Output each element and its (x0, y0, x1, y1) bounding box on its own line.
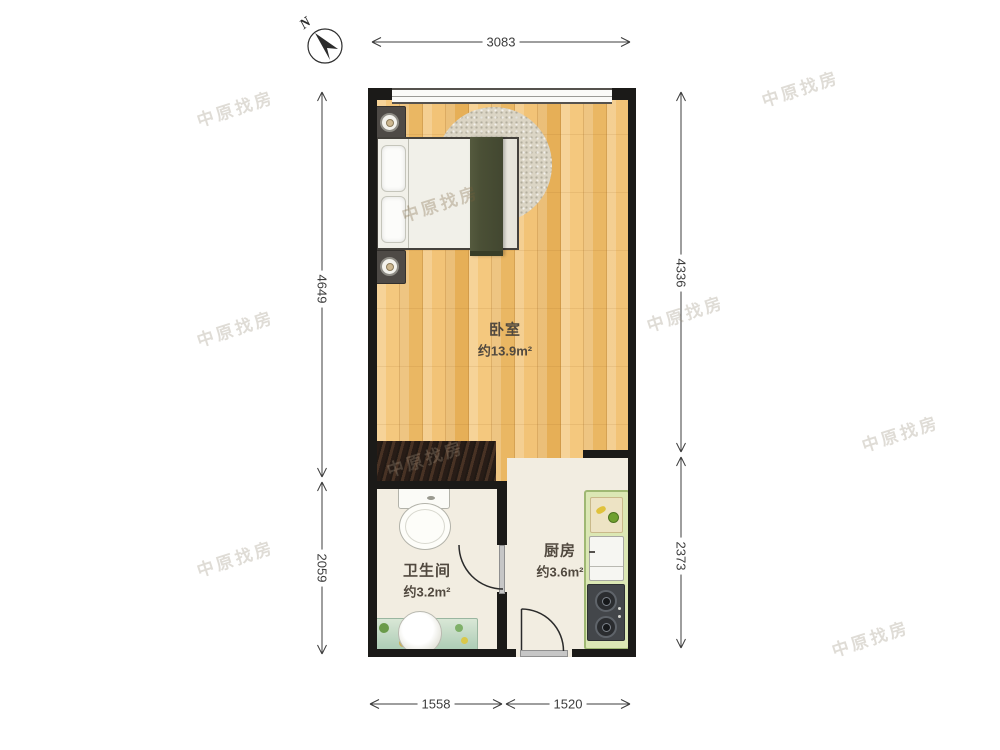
dim-right-lower-label: 2373 (674, 538, 689, 575)
bottle-icon (461, 637, 468, 644)
kitchen-name: 厨房 (537, 540, 584, 561)
fridge (589, 536, 624, 581)
bathroom-area: 约3.2m² (403, 582, 451, 601)
compass-icon (308, 29, 342, 63)
watermark: 中原找房 (758, 63, 842, 111)
bed-fold-line (408, 139, 409, 248)
bathroom-label: 卫生间 约3.2m² (403, 560, 451, 601)
lamp-core (386, 263, 394, 271)
nightstand-bottom (373, 250, 406, 284)
lamp-icon (380, 257, 399, 276)
fridge-handle (589, 551, 595, 553)
pillow (381, 145, 406, 192)
watermark: 中原找房 (643, 288, 727, 336)
outer-wall-right (628, 88, 636, 657)
floor-plan-canvas: 3083 4649 2059 4336 2373 1558 1520 N 卧室 … (0, 0, 1000, 750)
north-label: N (297, 15, 315, 34)
watermark: 中原找房 (193, 303, 277, 351)
vegetable-icon (608, 512, 619, 523)
outer-wall-bottom-right (572, 649, 636, 657)
window-top (392, 88, 612, 104)
watermark: 中原找房 (828, 613, 912, 661)
gas-stove (587, 584, 625, 641)
plant-icon (379, 623, 389, 633)
pillow (381, 196, 406, 243)
bedroom-label: 卧室 约13.9m² (478, 319, 532, 360)
stove-knob (618, 607, 621, 610)
dim-bottom-right-label: 1520 (550, 697, 587, 712)
burner-icon (595, 616, 617, 638)
watermark: 中原找房 (858, 408, 942, 456)
dim-top-label: 3083 (483, 35, 520, 50)
dim-left-upper-label: 4649 (315, 271, 330, 308)
vegetable-icon (595, 505, 607, 515)
dim-right-upper-label: 4336 (674, 255, 689, 292)
toilet-bowl-inner (405, 509, 445, 544)
toilet-flush-button (427, 496, 435, 500)
stove-knob (618, 615, 621, 618)
bathroom-top-wall (368, 481, 507, 489)
bed-blanket (470, 137, 503, 256)
lamp-core (386, 119, 394, 127)
cutting-board (590, 497, 623, 533)
bedroom-name: 卧室 (478, 319, 532, 340)
outer-wall-left (368, 88, 377, 657)
bathroom-right-wall-lower (497, 592, 507, 657)
burner-icon (595, 590, 617, 612)
bathroom-name: 卫生间 (403, 560, 451, 581)
dim-left-lower-label: 2059 (315, 550, 330, 587)
bathroom-right-wall-upper (497, 481, 507, 545)
kitchen-wall-stub (583, 450, 636, 458)
entry-door-slab (520, 650, 568, 657)
dim-bottom-left-label: 1558 (418, 697, 455, 712)
kitchen-area: 约3.6m² (537, 562, 584, 581)
watermark: 中原找房 (193, 533, 277, 581)
bottle-icon (455, 624, 463, 632)
bathroom-door-slab (499, 545, 505, 594)
lamp-icon (380, 113, 399, 132)
nightstand-top (373, 106, 406, 140)
watermark: 中原找房 (193, 83, 277, 131)
toilet-bowl (399, 503, 451, 550)
wardrobe (372, 441, 496, 483)
bedroom-area: 约13.9m² (478, 341, 532, 360)
kitchen-label: 厨房 约3.6m² (537, 540, 584, 581)
outer-wall-bottom-left (368, 649, 516, 657)
